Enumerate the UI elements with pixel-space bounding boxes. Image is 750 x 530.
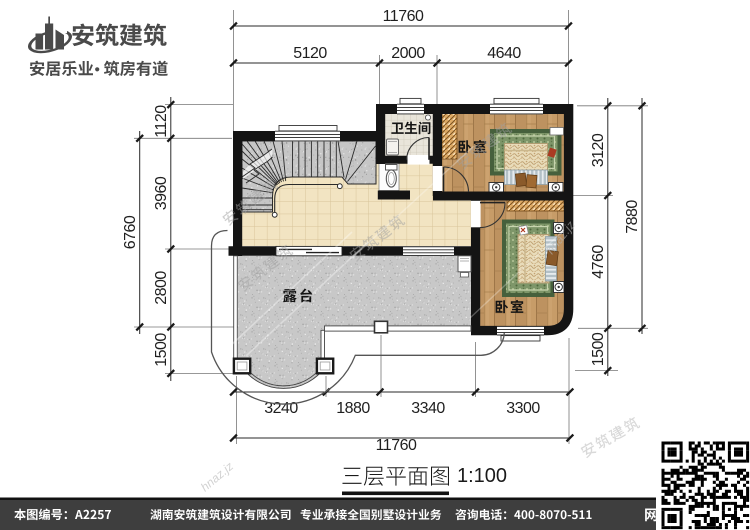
svg-text:6760: 6760 xyxy=(122,215,139,249)
svg-text:4760: 4760 xyxy=(590,245,607,279)
svg-text:3120: 3120 xyxy=(590,133,607,167)
svg-text:2800: 2800 xyxy=(153,271,170,305)
svg-text:1880: 1880 xyxy=(336,400,370,417)
svg-text:7880: 7880 xyxy=(624,200,641,234)
svg-text:5120: 5120 xyxy=(293,45,327,62)
svg-text:4640: 4640 xyxy=(487,45,521,62)
svg-text:3960: 3960 xyxy=(153,176,170,210)
svg-text:1:100: 1:100 xyxy=(457,465,507,487)
svg-text:11760: 11760 xyxy=(383,8,424,25)
svg-text:2000: 2000 xyxy=(391,45,425,62)
svg-text:1500: 1500 xyxy=(153,333,170,367)
svg-text:11760: 11760 xyxy=(376,437,417,454)
svg-text:3300: 3300 xyxy=(506,400,540,417)
svg-text:1500: 1500 xyxy=(590,332,607,366)
svg-text:1120: 1120 xyxy=(153,105,170,138)
svg-text:3340: 3340 xyxy=(411,400,445,417)
